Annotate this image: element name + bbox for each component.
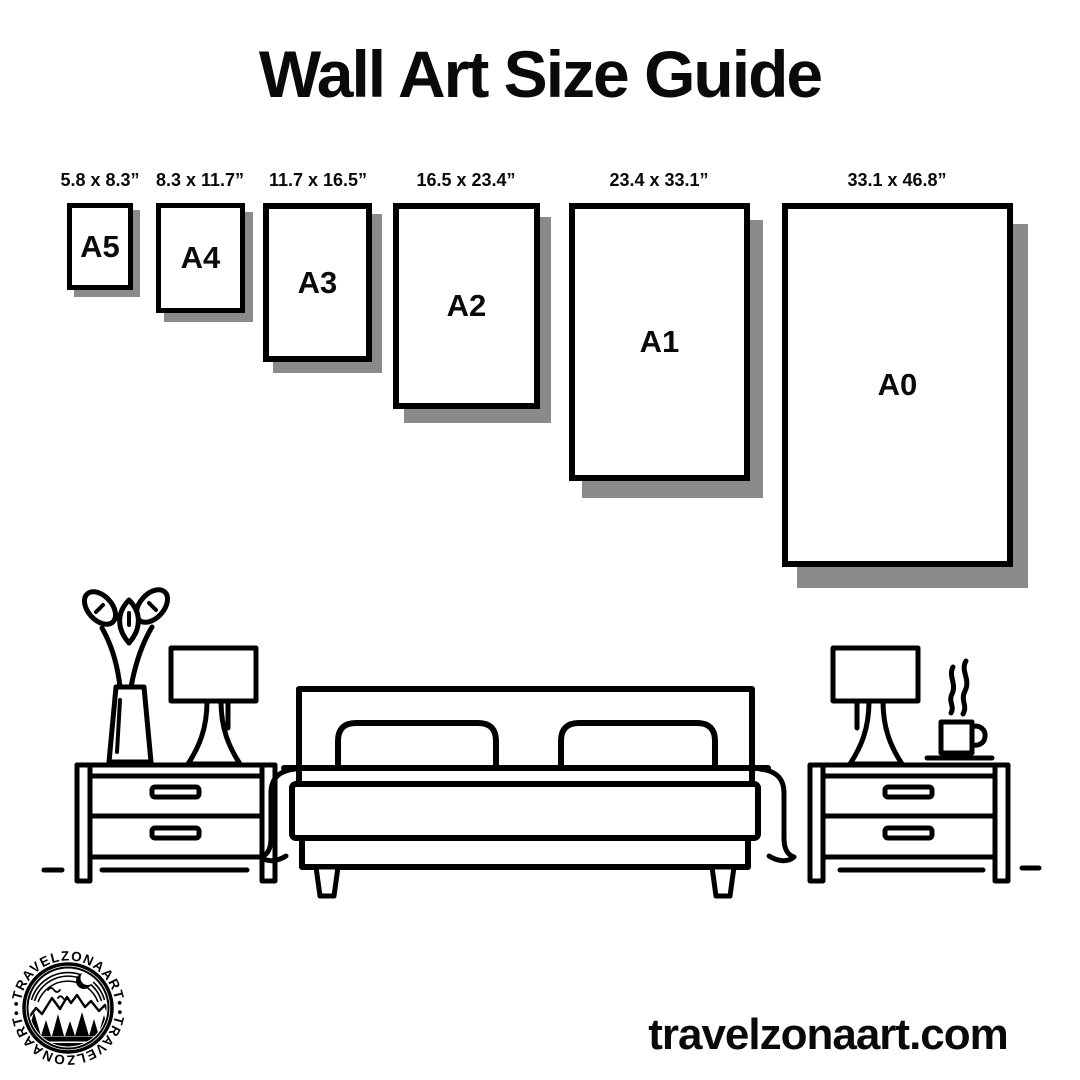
nightstand-right-icon — [810, 765, 1008, 881]
size-name-a5: A5 — [80, 229, 120, 265]
size-name-a0: A0 — [878, 367, 918, 403]
page-title: Wall Art Size Guide — [0, 36, 1080, 112]
pillow-right — [561, 723, 715, 768]
size-name-a2: A2 — [447, 288, 487, 324]
poster-frame-a4: A4 — [156, 203, 245, 313]
dimension-label-a0: 33.1 x 46.8” — [839, 170, 955, 194]
double-bed-icon — [261, 689, 794, 896]
dimension-label-a4: 8.3 x 11.7” — [142, 170, 258, 194]
table-lamp-left-icon — [171, 648, 256, 764]
website-url: travelzonaart.com — [588, 1010, 1068, 1060]
poster-frame-a3: A3 — [263, 203, 372, 362]
flower-vase-icon — [78, 584, 173, 762]
dimension-label-a1: 23.4 x 33.1” — [601, 170, 717, 194]
brand-logo-stamp: •TRAVELZONAART• •TRAVELZONAART• — [0, 938, 140, 1080]
dimension-label-a3: 11.7 x 16.5” — [260, 170, 376, 194]
poster-frame-a1: A1 — [569, 203, 750, 481]
dimension-label-a5: 5.8 x 8.3” — [42, 170, 158, 194]
poster-frame-a0: A0 — [782, 203, 1013, 567]
wall-art-size-guide-poster: Wall Art Size Guide 5.8 x 8.3” 8.3 x 11.… — [0, 0, 1080, 1080]
nightstand-left-icon — [77, 765, 275, 881]
size-name-a3: A3 — [298, 265, 338, 301]
poster-frame-a5: A5 — [67, 203, 133, 290]
table-lamp-right-icon — [833, 648, 918, 764]
bedroom-illustration — [0, 580, 1080, 910]
coffee-cup-icon — [927, 661, 992, 758]
poster-frame-a2: A2 — [393, 203, 540, 409]
dimension-label-a2: 16.5 x 23.4” — [408, 170, 524, 194]
size-name-a4: A4 — [181, 240, 221, 276]
size-name-a1: A1 — [640, 324, 680, 360]
pillow-left — [338, 723, 496, 768]
